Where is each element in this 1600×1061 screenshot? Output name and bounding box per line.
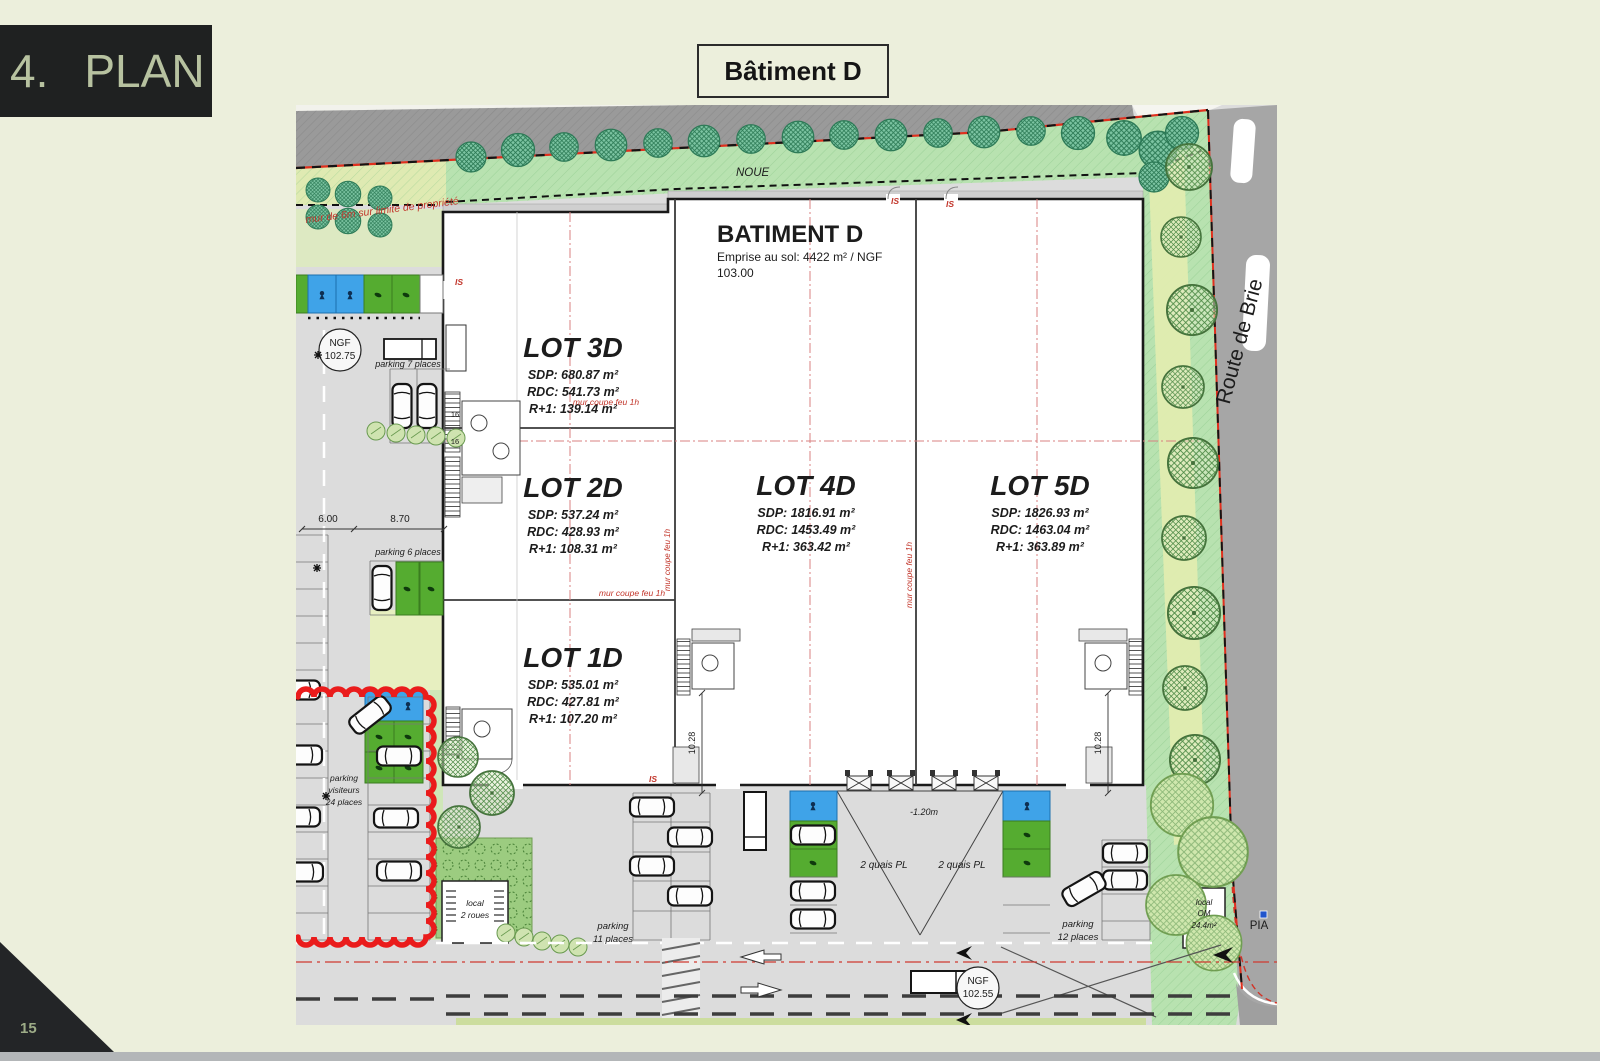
shrub-icon — [367, 422, 385, 440]
lot-1d-name: LOT 1D — [523, 642, 623, 673]
tree-icon — [502, 134, 535, 167]
lot-1d-rdc: RDC: 427.81 m² — [527, 695, 620, 709]
ngf-circle — [319, 329, 361, 371]
is-label: IS — [455, 277, 463, 287]
tree-icon — [1017, 117, 1046, 146]
car-icon — [296, 808, 320, 827]
firewall-label: mur coupe feu 1h — [904, 542, 914, 608]
shrub-icon — [569, 938, 587, 956]
tree-icon — [688, 125, 720, 157]
tree-icon — [1163, 666, 1207, 710]
tree-icon — [924, 119, 953, 148]
lot-5d-rdc: RDC: 1463.04 m² — [991, 523, 1090, 537]
door-opening — [716, 780, 740, 789]
dim-8-70: 8.70 — [390, 514, 410, 525]
shrub-icon — [407, 426, 425, 444]
window-bottom-bar — [0, 1052, 1600, 1061]
car-icon — [630, 798, 674, 817]
tree-icon — [875, 119, 907, 151]
tree-icon — [595, 129, 627, 161]
parking-visitors-2: visiteurs — [328, 785, 360, 795]
tree-icon — [830, 121, 859, 150]
tree-icon — [1161, 217, 1201, 257]
tree-icon — [438, 806, 480, 848]
shrub-icon — [533, 932, 551, 950]
car-icon — [296, 746, 322, 765]
lot-4d-name: LOT 4D — [756, 470, 856, 501]
local-om-1: local — [1196, 898, 1213, 907]
tree-icon — [1062, 117, 1095, 150]
local-bikes-1: local — [466, 898, 485, 908]
level-label: -1.20m — [910, 807, 939, 817]
noue-label: NOUE — [736, 167, 770, 179]
lot-3d-sdp: SDP: 680.87 m² — [528, 368, 619, 382]
car-icon — [791, 882, 835, 901]
tree-icon — [1107, 121, 1142, 156]
tree-icon — [1166, 144, 1212, 190]
dim-6-00: 6.00 — [318, 514, 338, 525]
dim-16: 16 — [451, 410, 459, 419]
tree-icon — [968, 116, 1000, 148]
tree-icon — [782, 121, 814, 153]
local-bikes-2: 2 roues — [460, 910, 490, 920]
truck-icon — [744, 792, 766, 850]
dim-10-28: 10.28 — [1093, 732, 1103, 755]
lot-2d-name: LOT 2D — [523, 472, 623, 503]
tree-icon — [1167, 285, 1217, 335]
car-icon — [1103, 871, 1147, 890]
car-icon — [791, 910, 835, 929]
parking-11-2: 11 places — [593, 934, 633, 945]
car-icon — [418, 384, 437, 428]
car-icon — [377, 747, 421, 766]
tree-icon — [644, 129, 673, 158]
tree-icon — [470, 771, 514, 815]
parking-12-1: parking — [1061, 919, 1094, 930]
corner-triangle — [0, 942, 114, 1052]
is-label: IS — [946, 199, 954, 209]
parking-12-2: 12 places — [1058, 932, 1099, 943]
parking-7-label: parking 7 places — [374, 359, 441, 369]
local-om-2: OM — [1198, 909, 1211, 918]
tree-icon — [1168, 587, 1220, 639]
is-label: IS — [891, 196, 899, 206]
car-icon — [296, 863, 323, 882]
stair-core — [677, 629, 740, 695]
car-icon — [668, 828, 712, 847]
ngf-south-1: NGF — [967, 976, 988, 987]
building-area-1: Emprise au sol: 4422 m² / NGF — [717, 250, 882, 264]
quais-left-label: 2 quais PL — [859, 860, 907, 871]
exterior-stair — [446, 325, 466, 371]
tree-icon — [335, 181, 361, 207]
lot-4d-rdc: RDC: 1453.49 m² — [757, 523, 856, 537]
ngf-west-1: NGF — [329, 338, 350, 349]
stair-core — [1079, 629, 1142, 695]
ngf-south-2: 102.55 — [963, 989, 994, 1000]
car-icon — [630, 857, 674, 876]
is-label: IS — [649, 774, 657, 784]
lot-2d-rdc: RDC: 428.93 m² — [527, 525, 620, 539]
parking-6-label: parking 6 places — [374, 547, 441, 557]
lot-2d-sdp: SDP: 537.24 m² — [528, 508, 619, 522]
dim-16: 16 — [451, 437, 459, 446]
building-name: BATIMENT D — [717, 221, 863, 248]
shrub-icon — [387, 424, 405, 442]
tree-icon — [1139, 162, 1169, 192]
car-icon — [791, 826, 835, 845]
tree-icon — [1162, 366, 1204, 408]
tree-icon — [550, 133, 579, 162]
site-plan: BATIMENT D Emprise au sol: 4422 m² / NGF… — [296, 105, 1277, 1025]
building-area-2: 103.00 — [717, 266, 754, 280]
building-title-box: Bâtiment D — [697, 44, 889, 98]
car-icon — [373, 566, 392, 610]
car-icon — [393, 384, 412, 428]
lot-1d-sdp: SDP: 535.01 m² — [528, 678, 619, 692]
pedestrian-icon — [313, 564, 321, 572]
tree-icon — [306, 178, 330, 202]
firewall-label: mur coupe feu 1h — [599, 588, 665, 598]
lot-4d-r1: R+1: 363.42 m² — [762, 540, 851, 554]
tree-icon — [1178, 817, 1248, 887]
lot-2d-r1: R+1: 108.31 m² — [529, 542, 618, 556]
firewall-label: mur coupe feu 1h — [573, 397, 639, 407]
car-icon — [1103, 844, 1147, 863]
section-banner: 4. PLAN — [0, 25, 212, 117]
car-icon — [377, 862, 421, 881]
lot-4d-sdp: SDP: 1816.91 m² — [757, 506, 855, 520]
ngf-west-2: 102.75 — [325, 351, 356, 362]
pia-label: PIA — [1250, 920, 1269, 932]
building-title: Bâtiment D — [724, 56, 861, 87]
firewall-label: mur coupe feu 1h — [663, 528, 672, 591]
section-title: PLAN — [84, 44, 204, 98]
lot-3d-name: LOT 3D — [523, 332, 623, 363]
page-number: 15 — [20, 1020, 37, 1037]
tree-icon — [456, 142, 486, 172]
slide: 4. PLAN Bâtiment D — [0, 0, 1600, 1061]
car-icon — [668, 887, 712, 906]
parking-11-1: parking — [596, 921, 629, 932]
lot-5d-name: LOT 5D — [990, 470, 1090, 501]
ngf-circle — [957, 967, 999, 1009]
car-icon — [374, 809, 418, 828]
pedestrian-icon — [314, 351, 322, 359]
pia-marker-icon — [1260, 911, 1267, 918]
dim-10-28: 10.28 — [687, 732, 697, 755]
parking-visitors-1: parking — [329, 773, 358, 783]
tree-icon — [1162, 516, 1206, 560]
lot-1d-r1: R+1: 107.20 m² — [529, 712, 618, 726]
parking-visitors-3: 24 places — [325, 797, 363, 807]
shrub-icon — [427, 427, 445, 445]
lot-5d-r1: R+1: 363.89 m² — [996, 540, 1085, 554]
shrub-icon — [497, 924, 515, 942]
lot-5d-sdp: SDP: 1826.93 m² — [991, 506, 1089, 520]
tree-icon — [438, 737, 478, 777]
section-number: 4. — [10, 44, 48, 98]
van-icon — [384, 339, 436, 359]
local-om-3: 24.4m² — [1191, 921, 1217, 930]
quais-right-label: 2 quais PL — [937, 860, 985, 871]
tree-icon — [1168, 438, 1218, 488]
tree-icon — [737, 125, 766, 154]
